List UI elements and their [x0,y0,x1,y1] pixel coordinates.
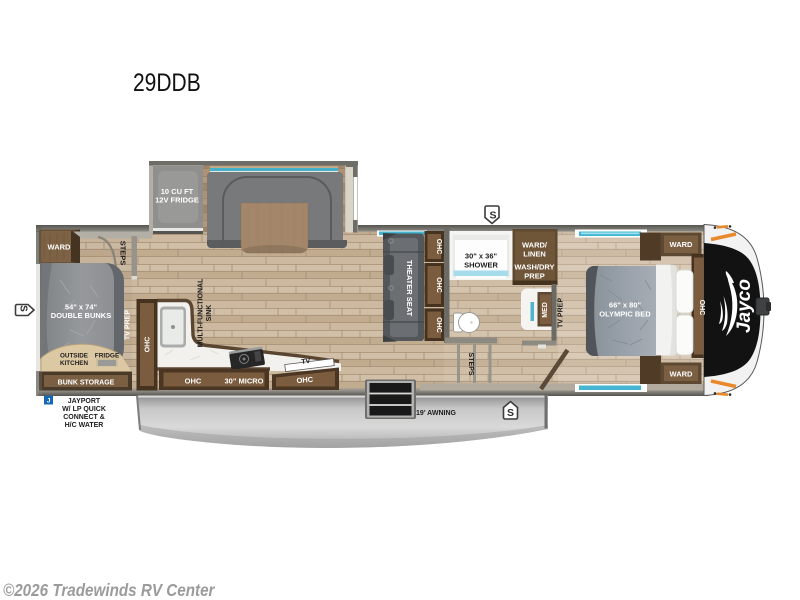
svg-text:66" x 80": 66" x 80" [609,301,642,310]
svg-text:S: S [489,210,496,222]
svg-text:FRIDGE: FRIDGE [95,353,120,360]
svg-text:W/ LP QUICK: W/ LP QUICK [62,406,106,413]
svg-text:WARD: WARD [670,370,693,379]
svg-text:S: S [507,407,514,419]
svg-text:CONNECT &: CONNECT & [63,414,105,421]
svg-text:STEPS: STEPS [467,353,474,376]
svg-text:OHC: OHC [435,239,442,255]
svg-text:WASH/DRY: WASH/DRY [514,263,554,272]
svg-text:TV PREP: TV PREP [558,298,565,328]
svg-text:J: J [47,398,51,405]
svg-text:THEATER SEAT: THEATER SEAT [405,260,414,317]
svg-text:OLYMPIC BED: OLYMPIC BED [599,310,651,319]
svg-text:STEPS: STEPS [119,241,128,266]
svg-text:OHC: OHC [145,337,152,353]
svg-text:WARD/: WARD/ [522,241,548,250]
svg-text:30" x 36": 30" x 36" [465,252,498,261]
svg-text:SHOWER: SHOWER [464,261,498,270]
svg-text:12V FRIDGE: 12V FRIDGE [155,196,199,205]
svg-text:19' AWNING: 19' AWNING [416,410,456,417]
svg-text:OHC: OHC [435,277,442,293]
svg-text:TV PREP: TV PREP [125,310,132,340]
svg-text:SINK: SINK [206,305,213,322]
svg-text:MULTI-FUNCTIONAL: MULTI-FUNCTIONAL [198,278,205,347]
svg-text:KITCHEN: KITCHEN [60,360,88,367]
svg-text:30" MICRO: 30" MICRO [225,377,264,386]
svg-text:S: S [18,305,29,312]
svg-text:TV: TV [301,358,311,366]
svg-text:BUNK STORAGE: BUNK STORAGE [58,380,115,387]
svg-text:DOUBLE BUNKS: DOUBLE BUNKS [51,311,111,320]
svg-text:H/C WATER: H/C WATER [65,422,104,429]
svg-text:OHC: OHC [185,377,202,386]
svg-text:WARD: WARD [670,240,693,249]
svg-text:OHC: OHC [698,300,705,316]
svg-text:MED: MED [542,302,549,318]
svg-text:OUTSIDE: OUTSIDE [60,353,88,360]
svg-text:WARD: WARD [48,243,71,252]
svg-text:OHC: OHC [296,375,314,385]
svg-text:OHC: OHC [435,317,442,333]
svg-text:JAYPORT: JAYPORT [68,398,101,405]
svg-text:PREP: PREP [524,272,544,281]
svg-text:LINEN: LINEN [523,250,546,259]
